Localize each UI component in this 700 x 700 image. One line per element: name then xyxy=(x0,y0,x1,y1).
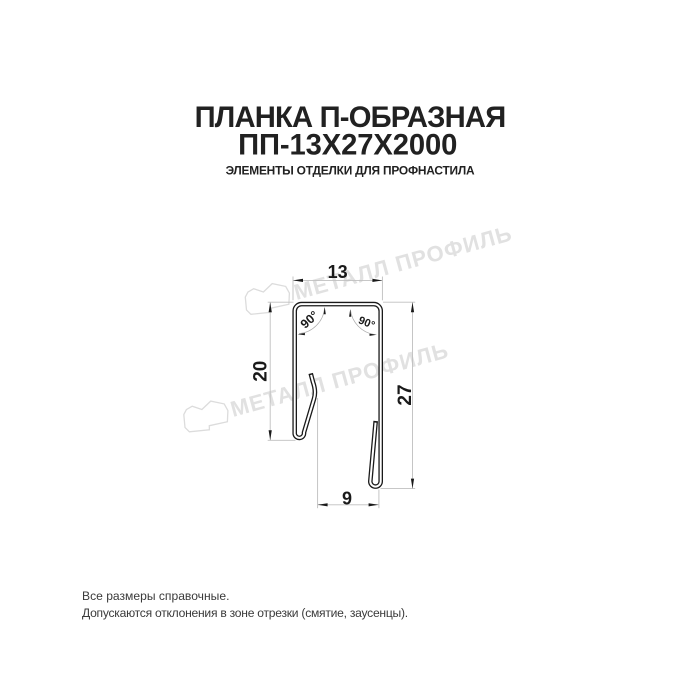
svg-text:13: 13 xyxy=(328,262,348,282)
svg-text:ПП-13Х27Х2000: ПП-13Х27Х2000 xyxy=(238,129,457,161)
svg-text:Допускаются отклонения в зоне: Допускаются отклонения в зоне отрезки (с… xyxy=(82,606,408,620)
svg-text:9: 9 xyxy=(342,489,352,509)
svg-text:ЭЛЕМЕНТЫ ОТДЕЛКИ ДЛЯ ПРОФНАСТИ: ЭЛЕМЕНТЫ ОТДЕЛКИ ДЛЯ ПРОФНАСТИЛА xyxy=(226,163,475,177)
svg-text:27: 27 xyxy=(395,384,416,405)
svg-text:20: 20 xyxy=(250,361,271,382)
svg-text:Все размеры справочные.: Все размеры справочные. xyxy=(82,589,229,603)
